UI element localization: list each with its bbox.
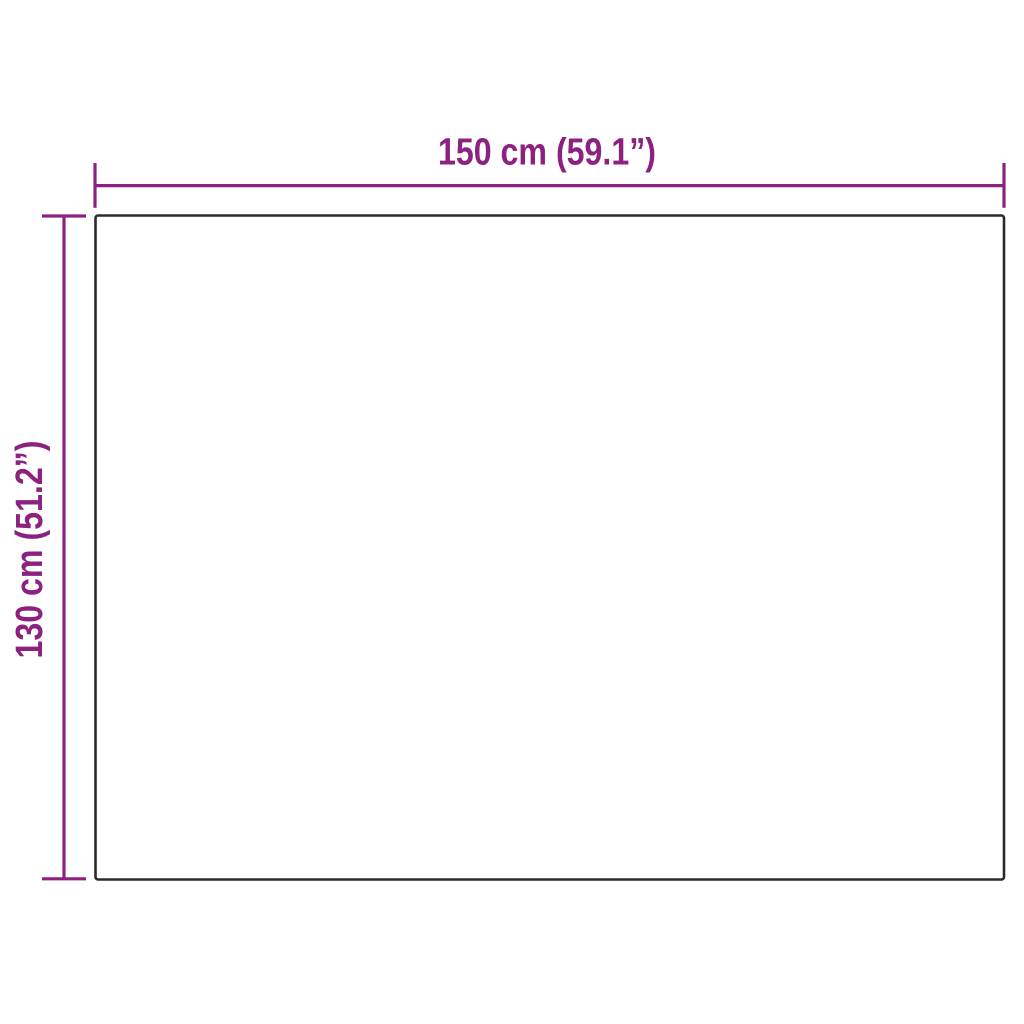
- svg-text:150 cm (59.1”): 150 cm (59.1”): [438, 132, 656, 174]
- svg-text:130 cm (51.2”): 130 cm (51.2”): [9, 441, 51, 659]
